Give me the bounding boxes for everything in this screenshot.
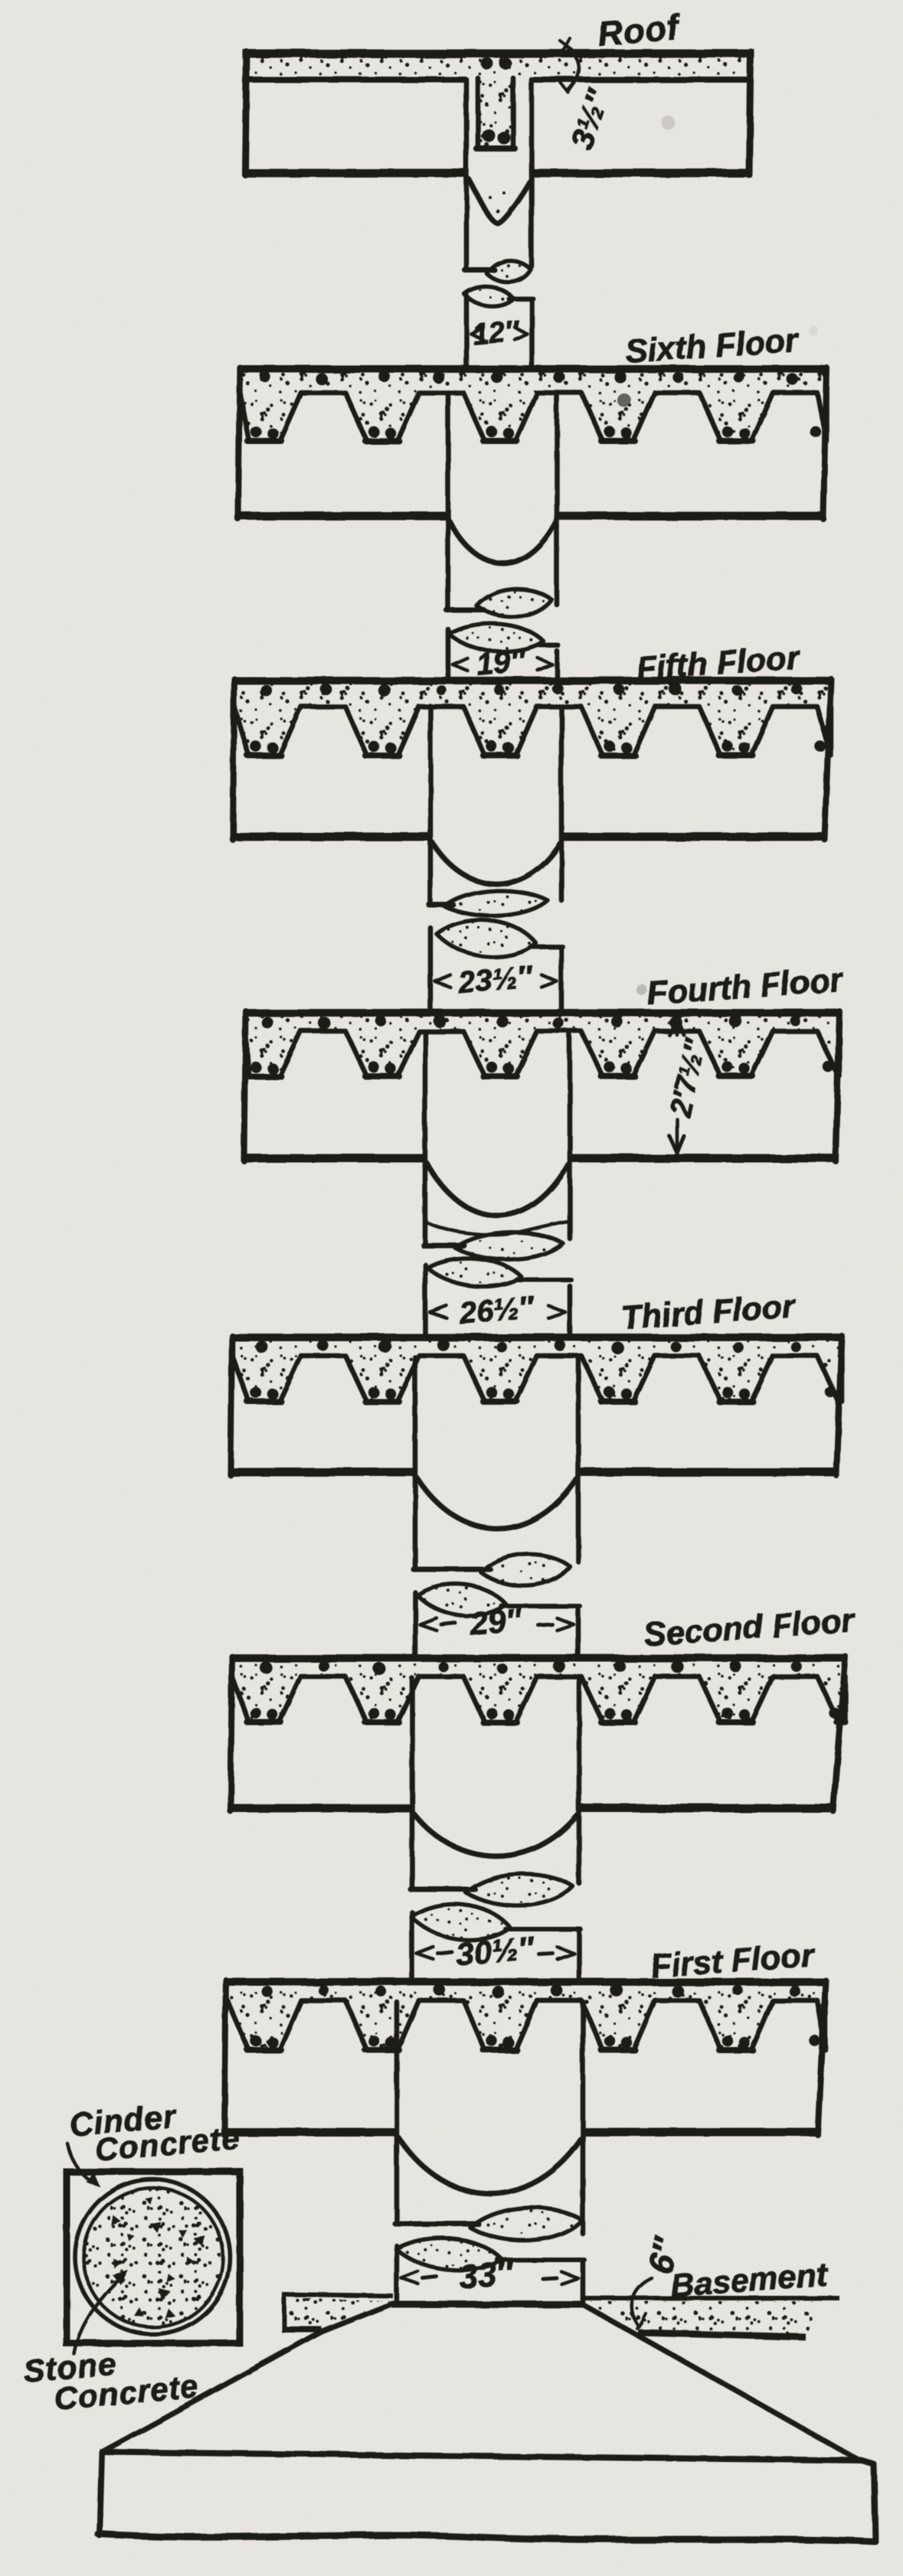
svg-text:12″: 12″ [471, 315, 522, 351]
svg-text:Roof: Roof [596, 8, 683, 54]
svg-text:19″: 19″ [475, 644, 528, 682]
svg-text:30½″: 30½″ [454, 1930, 536, 1973]
svg-text:26½″: 26½″ [457, 1291, 536, 1331]
svg-text:33″: 33″ [458, 2254, 516, 2297]
svg-text:29″: 29″ [468, 1601, 525, 1642]
svg-text:23½″: 23½″ [456, 960, 535, 1001]
